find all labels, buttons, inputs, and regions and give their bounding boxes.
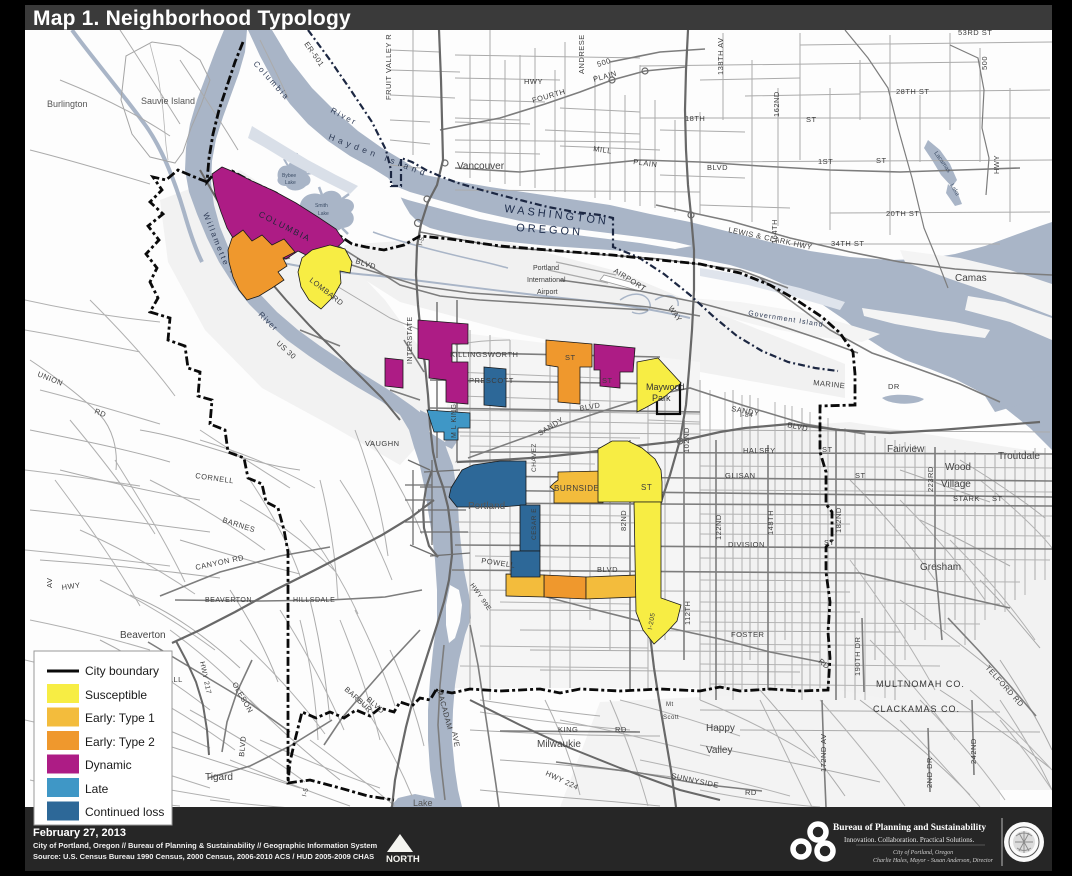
- svg-text:RD: RD: [615, 725, 627, 734]
- svg-text:Continued loss: Continued loss: [85, 805, 164, 819]
- svg-text:Burlington: Burlington: [47, 99, 88, 109]
- svg-text:Park: Park: [652, 393, 671, 403]
- svg-text:Charlie Hales, Mayor - Susan: Charlie Hales, Mayor - Susan Anderson, D…: [873, 858, 994, 864]
- svg-text:Lake: Lake: [413, 798, 433, 808]
- svg-text:34TH ST: 34TH ST: [831, 239, 865, 248]
- svg-text:ST: ST: [992, 494, 1003, 503]
- svg-text:FRUIT VALLEY R: FRUIT VALLEY R: [384, 34, 393, 100]
- svg-text:HILLSDALE: HILLSDALE: [293, 597, 335, 604]
- svg-text:Smith: Smith: [315, 203, 328, 209]
- svg-text:Village: Village: [941, 479, 971, 490]
- svg-text:BLVD: BLVD: [597, 565, 618, 574]
- svg-text:28TH ST: 28TH ST: [896, 87, 930, 96]
- svg-text:CESAR E: CESAR E: [531, 508, 538, 540]
- svg-text:Dynamic: Dynamic: [85, 758, 132, 772]
- svg-text:164TH: 164TH: [770, 219, 779, 244]
- svg-text:ST: ST: [824, 538, 835, 547]
- svg-text:18TH: 18TH: [685, 114, 705, 123]
- svg-text:GLISAN: GLISAN: [725, 471, 756, 480]
- svg-text:1ST: 1ST: [818, 157, 833, 166]
- svg-text:Bybee: Bybee: [282, 173, 296, 179]
- svg-text:Airport: Airport: [537, 289, 558, 296]
- svg-text:PRESCOTT: PRESCOTT: [469, 376, 514, 385]
- svg-text:HWY: HWY: [992, 155, 1001, 174]
- svg-text:500: 500: [980, 56, 989, 70]
- svg-text:BLVD: BLVD: [237, 735, 248, 757]
- svg-text:ST: ST: [855, 471, 866, 480]
- svg-text:162ND: 162ND: [772, 91, 781, 117]
- svg-text:International: International: [527, 277, 566, 284]
- svg-text:112TH: 112TH: [683, 601, 692, 625]
- svg-text:ST: ST: [602, 376, 613, 385]
- svg-text:Milwaukie: Milwaukie: [537, 739, 581, 750]
- svg-text:223RD: 223RD: [926, 466, 935, 492]
- svg-text:Troutdale: Troutdale: [998, 451, 1040, 462]
- svg-text:FOSTER: FOSTER: [731, 630, 765, 639]
- svg-text:Early: Type 1: Early: Type 1: [85, 711, 155, 725]
- svg-text:ST: ST: [876, 156, 887, 165]
- svg-text:Gresham: Gresham: [920, 562, 961, 573]
- svg-text:Sauvie Island: Sauvie Island: [141, 96, 195, 106]
- svg-text:Happy: Happy: [706, 723, 735, 734]
- svg-text:AV: AV: [45, 578, 54, 588]
- svg-text:82ND: 82ND: [619, 510, 628, 531]
- svg-text:102ND: 102ND: [682, 427, 691, 453]
- svg-text:VAUGHN: VAUGHN: [365, 439, 400, 448]
- svg-text:Wood: Wood: [945, 462, 971, 473]
- svg-text:182ND: 182ND: [834, 507, 843, 533]
- svg-text:CHAVEZ: CHAVEZ: [531, 443, 538, 472]
- svg-text:172ND AV: 172ND AV: [819, 734, 828, 772]
- svg-text:Maywood: Maywood: [646, 382, 685, 392]
- svg-text:Tigard: Tigard: [205, 772, 233, 783]
- svg-text:Innovation. Collaboration. Pra: Innovation. Collaboration. Practical Sol…: [844, 836, 975, 844]
- svg-text:Mt: Mt: [666, 702, 674, 708]
- svg-text:Bureau of Planning and Sustain: Bureau of Planning and Sustainability: [833, 823, 986, 833]
- svg-text:City of Portland, Oregon: City of Portland, Oregon: [893, 849, 953, 856]
- svg-text:HWY: HWY: [524, 77, 543, 86]
- svg-text:INTERSTATE: INTERSTATE: [407, 316, 414, 364]
- svg-text:Beaverton: Beaverton: [120, 630, 166, 641]
- svg-text:NORTH: NORTH: [386, 854, 420, 865]
- svg-text:Vancouver: Vancouver: [457, 161, 505, 172]
- svg-text:KILLINGSWORTH: KILLINGSWORTH: [450, 350, 518, 359]
- svg-text:ST: ST: [822, 445, 833, 454]
- svg-text:Map 1. Neighborhood Typology: Map 1. Neighborhood Typology: [33, 7, 351, 30]
- svg-text:February 27, 2013: February 27, 2013: [33, 827, 126, 839]
- svg-text:DIVISION: DIVISION: [728, 540, 765, 549]
- svg-text:Lake: Lake: [285, 180, 296, 186]
- svg-text:138TH AV: 138TH AV: [716, 37, 725, 75]
- svg-text:City of Portland, Oregon // Bu: City of Portland, Oregon // Bureau of Pl…: [33, 841, 378, 850]
- svg-text:Portland: Portland: [468, 501, 505, 512]
- svg-text:ST: ST: [565, 353, 576, 362]
- svg-text:ANDRESE: ANDRESE: [577, 34, 586, 74]
- svg-text:148TH: 148TH: [766, 510, 775, 535]
- svg-text:Susceptible: Susceptible: [85, 688, 147, 702]
- svg-text:Lake: Lake: [318, 211, 329, 217]
- svg-text:Fairview: Fairview: [887, 444, 925, 455]
- svg-text:Valley: Valley: [706, 745, 733, 756]
- svg-text:BURNSIDE: BURNSIDE: [554, 484, 599, 493]
- svg-text:City boundary: City boundary: [85, 664, 159, 678]
- svg-text:BLVD: BLVD: [707, 163, 728, 172]
- svg-text:Early: Type 2: Early: Type 2: [85, 735, 155, 749]
- svg-text:MULTNOMAH CO.: MULTNOMAH CO.: [876, 679, 965, 689]
- svg-text:2ND DR: 2ND DR: [925, 757, 934, 788]
- svg-text:STARK: STARK: [953, 494, 980, 503]
- svg-text:DR: DR: [888, 382, 900, 391]
- svg-text:Scott: Scott: [663, 715, 679, 721]
- svg-text:M L KING: M L KING: [451, 404, 458, 438]
- svg-text:RD: RD: [745, 788, 757, 797]
- svg-text:KING: KING: [558, 725, 578, 734]
- svg-text:BEAVERTON: BEAVERTON: [205, 597, 252, 604]
- svg-text:Camas: Camas: [955, 273, 987, 284]
- svg-text:Late: Late: [85, 782, 109, 796]
- svg-text:20TH ST: 20TH ST: [886, 209, 920, 218]
- svg-text:Source: U.S. Census Bureau 199: Source: U.S. Census Bureau 1990 Census, …: [33, 852, 374, 861]
- svg-text:190TH DR: 190TH DR: [853, 636, 862, 676]
- svg-text:CLACKAMAS CO.: CLACKAMAS CO.: [873, 704, 960, 714]
- svg-text:HALSEY: HALSEY: [743, 446, 776, 455]
- svg-text:Portland: Portland: [533, 265, 559, 272]
- svg-text:242ND: 242ND: [969, 738, 978, 764]
- svg-text:ST: ST: [641, 483, 652, 492]
- svg-text:122ND: 122ND: [714, 514, 723, 540]
- svg-text:I-84: I-84: [740, 412, 753, 419]
- svg-text:ST: ST: [806, 115, 817, 124]
